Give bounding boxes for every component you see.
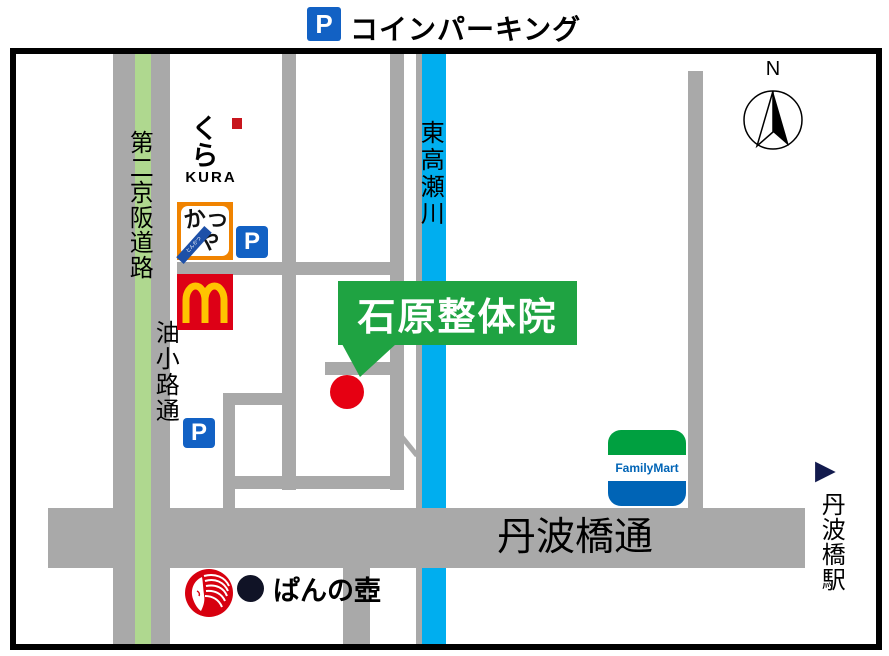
familymart-label: FamilyMart xyxy=(615,461,678,475)
river-label: 東高瀬川 xyxy=(417,120,442,228)
familymart-logo: FamilyMart xyxy=(608,430,686,506)
clinic-callout: 石原整体院 xyxy=(338,281,577,345)
clinic-location-marker xyxy=(330,375,364,409)
side-road-vertical xyxy=(223,393,235,508)
aburakoji-label: 油小路通 xyxy=(152,320,177,424)
mcdonalds-logo xyxy=(177,274,233,330)
kura-seal-icon xyxy=(232,118,242,129)
tanbabashi-dori-road xyxy=(48,508,805,568)
map-canvas: 第二京阪道路 油小路通 東高瀬川 丹波橋通 ▶ 丹波橋駅 N くら KURA か… xyxy=(10,48,882,650)
clinic-name: 石原整体院 xyxy=(357,286,557,341)
bakery-location-dot xyxy=(237,575,264,602)
tanbabashi-station-label: 丹波橋駅 xyxy=(818,492,843,592)
station-direction-arrow-icon: ▶ xyxy=(815,456,836,484)
tanbabashi-dori-label: 丹波橋通 xyxy=(497,518,653,559)
daini-keihan-label: 第二京阪道路 xyxy=(126,130,151,280)
familymart-name-band: FamilyMart xyxy=(608,455,686,481)
familymart-green-band xyxy=(608,430,686,455)
kura-sushi-logo: くら KURA xyxy=(180,116,242,185)
compass-icon xyxy=(741,86,805,154)
katsuya-logo-inner: か つ や とんかつ xyxy=(181,206,229,256)
kura-en-text: KURA xyxy=(180,170,242,185)
side-road-stub xyxy=(223,393,285,405)
golden-arches-icon xyxy=(177,274,233,330)
coin-parking-sign-upper: P xyxy=(236,226,268,258)
clinic-callout-tail xyxy=(338,344,418,378)
parking-legend-icon: P xyxy=(307,7,341,41)
cross-street-lower xyxy=(223,476,404,489)
parking-legend-label: コインパーキング xyxy=(350,8,581,48)
bakery-logo-icon xyxy=(184,568,234,618)
kura-jp-text: くら xyxy=(180,116,230,170)
katsuya-logo: か つ や とんかつ xyxy=(177,202,233,260)
bakery-label: ぱんの壺 xyxy=(273,577,381,605)
east-vertical-road xyxy=(688,71,703,508)
compass-north-label: N xyxy=(764,58,782,81)
familymart-blue-band xyxy=(608,481,686,506)
coin-parking-sign-lower: P xyxy=(183,418,215,448)
